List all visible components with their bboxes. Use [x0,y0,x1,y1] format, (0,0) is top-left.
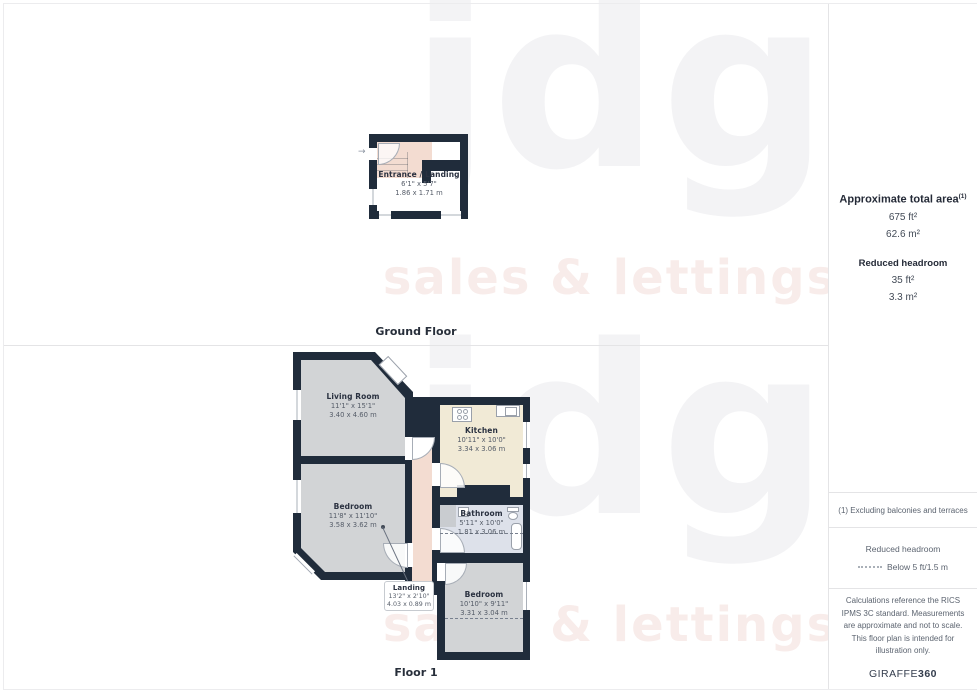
watermark-jdg-text: jdg [410,0,810,203]
floor-1-plan: Landing 13'2" x 2'10" 4.03 x 0.89 m Livi… [293,352,533,660]
window [523,422,530,448]
door-opening [432,463,440,486]
footnote-section: (1) Excluding balconies and terraces [829,493,977,527]
legend-row: Below 5 ft/1.5 m [858,562,948,572]
room-label-bathroom: Bathroom 5'11" x 10'0" 1.81 x 3.06 m [440,509,523,536]
ground-floor-title: Ground Floor [4,325,828,338]
window [293,480,301,513]
disclaimer-text: Calculations reference the RICS IPMS 3C … [840,595,966,657]
entry-arrow-icon: → [358,147,366,157]
ground-floor-plan: → Entrance / Landing 6'1" x 5'7" 1.86 x … [369,134,468,219]
stove-icon [452,407,472,422]
legend-section: Reduced headroom Below 5 ft/1.5 m [829,528,977,588]
window [379,211,391,219]
sink-icon [496,405,520,417]
room-label-kitchen: Kitchen 10'11" x 10'0" 3.34 x 3.06 m [440,426,523,453]
reduced-headroom-line [445,618,523,619]
window [523,582,530,610]
reduced-headroom-heading: Reduced headroom [859,258,948,269]
dotted-line-icon [858,566,882,568]
room-label-bedroom-2: Bedroom 10'10" x 9'11" 3.31 x 3.04 m [445,590,523,617]
room-label-bedroom: Bedroom 11'8" x 11'10" 3.58 x 3.62 m [301,502,405,529]
room-label-living-room: Living Room 11'1" x 15'1" 3.40 x 4.60 m [301,392,405,419]
window [293,390,301,420]
reduced-headroom-ft: 35 ft² [892,275,915,286]
window [523,464,530,478]
disclaimer-section: Calculations reference the RICS IPMS 3C … [829,589,977,689]
brand-watermark-top: jdg sales & lettings [410,0,810,203]
floorplan-canvas: jdg sales & lettings jdg sales & letting… [0,0,980,693]
door-opening [437,563,445,581]
stairs-area [422,142,432,160]
footnote-text: (1) Excluding balconies and terraces [838,506,967,515]
window [441,211,461,219]
legend-value: Below 5 ft/1.5 m [887,562,948,572]
floor-1-title: Floor 1 [4,666,828,679]
total-area-ft: 675 ft² [889,212,917,223]
door-opening [369,148,377,160]
total-area-section: Approximate total area(1) 675 ft² 62.6 m… [829,4,977,492]
footnote-marker: (1) [959,193,967,200]
giraffe360-logo: GIRAFFE360 [869,666,937,682]
info-sidebar: Approximate total area(1) 675 ft² 62.6 m… [828,4,977,689]
door-opening [432,528,440,550]
reduced-headroom-m: 3.3 m² [889,292,917,303]
legend-title: Reduced headroom [866,544,941,554]
room-label-landing: Landing 13'2" x 2'10" 4.03 x 0.89 m [384,581,434,611]
room-label-entrance-landing: Entrance / Landing 6'1" x 5'7" 1.86 x 1.… [373,170,465,197]
total-area-m: 62.6 m² [886,229,920,240]
total-area-heading: Approximate total area(1) [839,193,966,206]
section-divider [4,345,828,346]
